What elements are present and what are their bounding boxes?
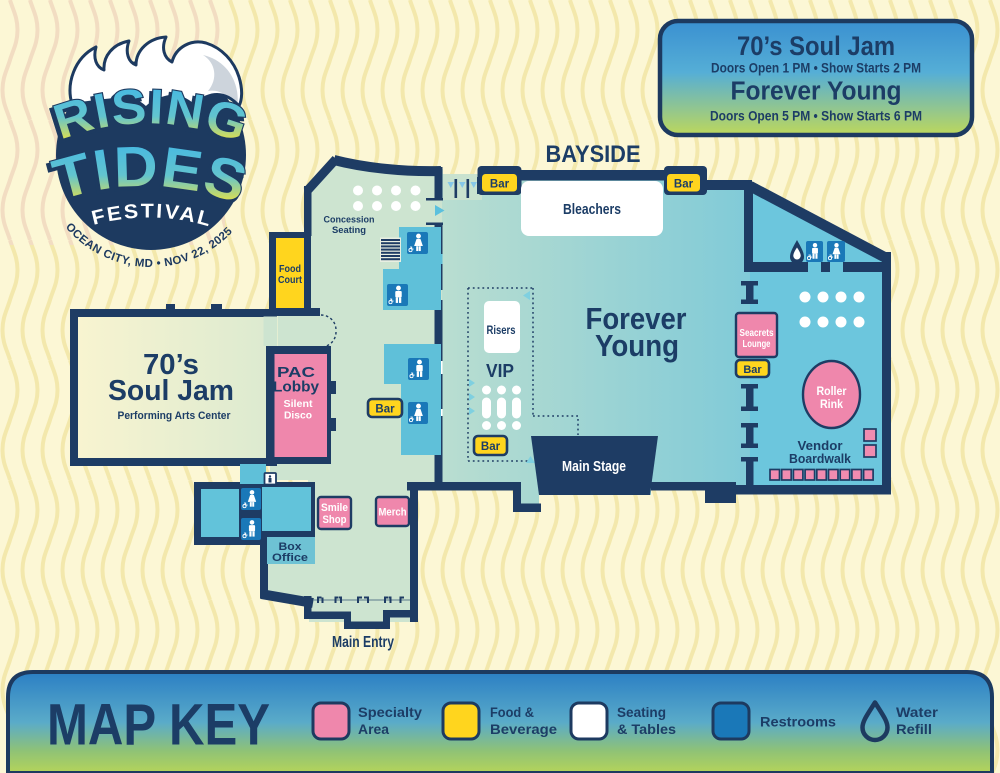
svg-text:Office: Office — [272, 552, 308, 564]
svg-text:& Tables: & Tables — [617, 721, 676, 737]
svg-text:Bar: Bar — [481, 441, 501, 453]
svg-text:70’s Soul Jam: 70’s Soul Jam — [737, 31, 895, 61]
svg-text:Refill: Refill — [896, 721, 932, 737]
svg-text:BAYSIDE: BAYSIDE — [546, 141, 641, 168]
svg-text:Seating: Seating — [617, 704, 666, 720]
svg-text:Main Entry: Main Entry — [332, 634, 394, 651]
svg-text:Boardwalk: Boardwalk — [789, 451, 852, 466]
svg-text:Bleachers: Bleachers — [563, 202, 621, 218]
svg-text:Concession: Concession — [324, 215, 375, 226]
svg-text:Bar: Bar — [490, 179, 510, 191]
svg-text:Bar: Bar — [743, 364, 762, 376]
svg-text:Seacrets: Seacrets — [740, 328, 774, 339]
svg-text:Young: Young — [595, 328, 679, 363]
svg-text:Main Stage: Main Stage — [562, 459, 626, 475]
svg-text:Water: Water — [896, 704, 939, 720]
svg-text:Restrooms: Restrooms — [760, 714, 836, 730]
svg-text:Bar: Bar — [674, 179, 694, 191]
svg-text:Smile: Smile — [321, 502, 348, 514]
svg-text:Bar: Bar — [375, 404, 395, 416]
svg-text:Court: Court — [278, 275, 303, 286]
svg-text:Risers: Risers — [487, 323, 516, 337]
svg-text:Rink: Rink — [820, 399, 844, 411]
svg-text:Lounge: Lounge — [743, 339, 771, 350]
svg-text:Lobby: Lobby — [273, 379, 320, 396]
svg-text:Soul Jam: Soul Jam — [108, 375, 234, 407]
svg-text:Food: Food — [279, 264, 301, 275]
svg-text:Doors Open 5 PM • Show Starts: Doors Open 5 PM • Show Starts 6 PM — [710, 108, 922, 124]
svg-text:Specialty: Specialty — [358, 704, 422, 720]
svg-text:Shop: Shop — [323, 514, 347, 526]
svg-text:Disco: Disco — [284, 410, 312, 422]
svg-text:Area: Area — [358, 721, 389, 737]
svg-text:Forever Young: Forever Young — [731, 78, 902, 106]
svg-text:Merch: Merch — [379, 507, 407, 519]
svg-text:MAP KEY: MAP KEY — [47, 693, 270, 758]
svg-text:Food &: Food & — [490, 704, 534, 720]
svg-text:VIP: VIP — [486, 360, 514, 381]
svg-text:Roller: Roller — [817, 386, 847, 398]
svg-text:Beverage: Beverage — [490, 721, 557, 737]
svg-text:Doors Open 1 PM • Show Starts: Doors Open 1 PM • Show Starts 2 PM — [711, 60, 921, 76]
svg-text:Seating: Seating — [332, 225, 366, 236]
svg-text:Silent: Silent — [284, 398, 314, 410]
svg-text:Performing Arts Center: Performing Arts Center — [118, 410, 232, 422]
